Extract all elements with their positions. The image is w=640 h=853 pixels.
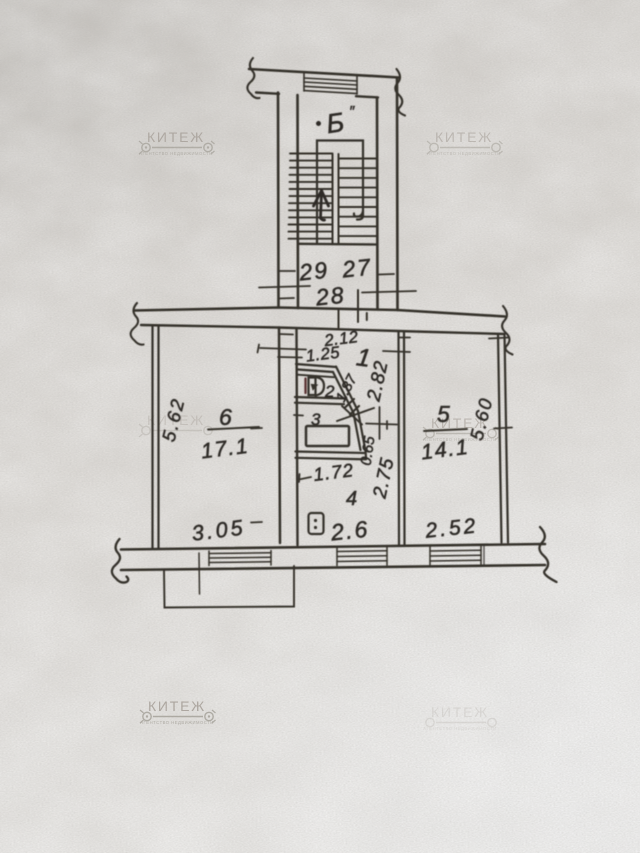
svg-text:4: 4 <box>346 488 357 510</box>
svg-text:КИТЕЖ: КИТЕЖ <box>431 704 489 720</box>
svg-text:КИТЕЖ: КИТЕЖ <box>147 129 205 145</box>
svg-text:5: 5 <box>437 401 450 427</box>
svg-text:6: 6 <box>219 404 232 430</box>
svg-text:КИТЕЖ: КИТЕЖ <box>148 698 206 714</box>
svg-text:″: ″ <box>349 103 355 120</box>
svg-text:АГЕНТСТВО НЕДВИЖИМОСТИ: АГЕНТСТВО НЕДВИЖИМОСТИ <box>139 151 212 156</box>
svg-text:АГЕНТСТВО НЕДВИЖИМОСТИ: АГЕНТСТВО НЕДВИЖИМОСТИ <box>423 726 496 731</box>
svg-text:28: 28 <box>314 282 347 311</box>
svg-text:АГЕНТСТВО НЕДВИЖИМОСТИ: АГЕНТСТВО НЕДВИЖИМОСТИ <box>140 720 213 725</box>
svg-text:АГЕНТСТВО НЕДВИЖИМОСТИ: АГЕНТСТВО НЕДВИЖИМОСТИ <box>427 151 500 156</box>
svg-text:29: 29 <box>297 257 330 286</box>
svg-text:27: 27 <box>340 254 373 283</box>
svg-text:2.6: 2.6 <box>329 516 371 546</box>
svg-text:КИТЕЖ: КИТЕЖ <box>435 129 493 145</box>
